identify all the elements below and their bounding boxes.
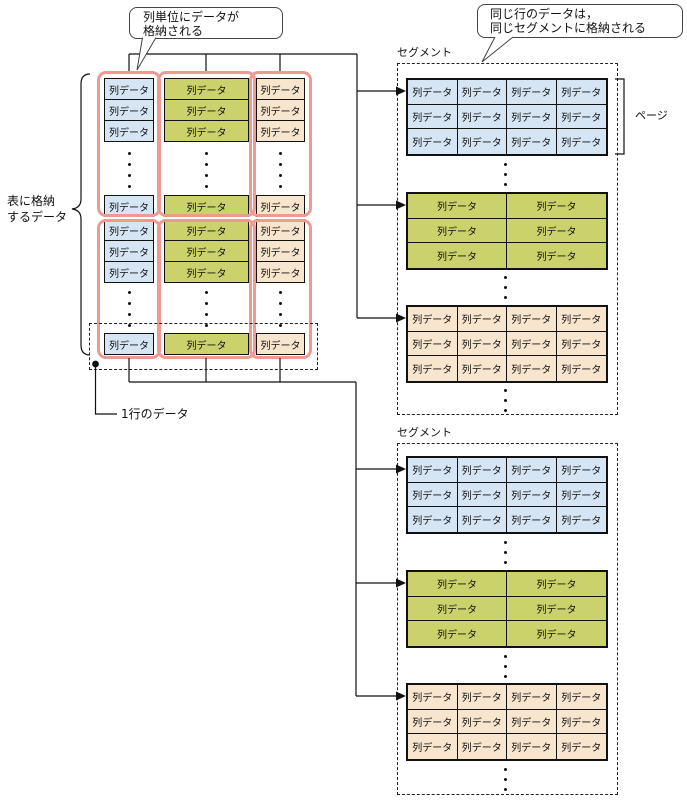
column-data-cell: 列データ bbox=[458, 356, 508, 381]
column-data-cell: 列データ bbox=[507, 129, 557, 154]
callout-segment-storage-line2: 同じセグメントに格納される bbox=[490, 21, 677, 35]
ellipsis-dot bbox=[504, 409, 507, 412]
ellipsis-dot bbox=[504, 399, 507, 402]
column-data-cell: 列データ bbox=[557, 734, 607, 759]
column-data-cell: 列データ bbox=[408, 734, 458, 759]
column-data-cell: 列データ bbox=[408, 129, 458, 154]
segment-label: セグメント bbox=[397, 424, 452, 440]
column-data-cell: 列データ bbox=[458, 734, 508, 759]
column-data-cell: 列データ bbox=[507, 194, 606, 219]
column-data-cell: 列データ bbox=[507, 332, 557, 357]
column-data-cell: 列データ bbox=[557, 685, 607, 710]
column-data-cell: 列データ bbox=[557, 356, 607, 381]
column-data-cell: 列データ bbox=[557, 507, 607, 532]
column-data-cell: 列データ bbox=[458, 129, 508, 154]
column-data-cell: 列データ bbox=[408, 194, 507, 219]
column-data-cell: 列データ bbox=[557, 710, 607, 735]
table-data-label: 表に格納 するデータ bbox=[7, 194, 67, 225]
row-data-outline bbox=[89, 323, 318, 370]
callout-tail bbox=[482, 37, 513, 62]
column-data-cell: 列データ bbox=[458, 80, 508, 105]
column-data-cell: 列データ bbox=[408, 685, 458, 710]
column-data-cell: 列データ bbox=[408, 597, 507, 622]
column-data-cell: 列データ bbox=[507, 307, 557, 332]
column-data-cell: 列データ bbox=[408, 80, 458, 105]
column-group-outline bbox=[249, 71, 312, 217]
column-data-cell: 列データ bbox=[458, 507, 508, 532]
ellipsis-dot bbox=[504, 389, 507, 392]
column-data-cell: 列データ bbox=[408, 219, 507, 244]
callout-tail bbox=[137, 38, 156, 71]
ellipsis-dot bbox=[504, 163, 507, 166]
column-data-cell: 列データ bbox=[507, 685, 557, 710]
callout-column-storage-line1: 列単位にデータが bbox=[143, 10, 277, 24]
ellipsis-dot bbox=[504, 173, 507, 176]
callout-column-storage: 列単位にデータが 格納される bbox=[129, 7, 283, 39]
column-data-cell: 列データ bbox=[408, 105, 458, 130]
page-block: 列データ列データ列データ列データ列データ列データ列データ列データ列データ列データ… bbox=[406, 456, 608, 534]
ellipsis-dot bbox=[504, 276, 507, 279]
row-label-connector-line bbox=[96, 364, 118, 414]
page-block: 列データ列データ列データ列データ列データ列データ列データ列データ列データ列データ… bbox=[406, 78, 608, 156]
column-data-cell: 列データ bbox=[408, 243, 507, 268]
diagram-canvas: 列単位にデータが 格納される 同じ行のデータは， 同じセグメントに格納される 表… bbox=[0, 0, 687, 800]
ellipsis-dot bbox=[504, 778, 507, 781]
column-data-cell: 列データ bbox=[458, 685, 508, 710]
column-data-cell: 列データ bbox=[458, 332, 508, 357]
ellipsis-dot bbox=[504, 551, 507, 554]
ellipsis-dot bbox=[504, 183, 507, 186]
column-data-cell: 列データ bbox=[507, 597, 606, 622]
column-data-cell: 列データ bbox=[458, 710, 508, 735]
column-data-cell: 列データ bbox=[507, 80, 557, 105]
column-data-cell: 列データ bbox=[557, 105, 607, 130]
column-data-cell: 列データ bbox=[507, 572, 606, 597]
column-data-cell: 列データ bbox=[507, 243, 606, 268]
column-data-cell: 列データ bbox=[408, 332, 458, 357]
column-data-cell: 列データ bbox=[557, 483, 607, 508]
page-block: 列データ列データ列データ列データ列データ列データ列データ列データ列データ列データ… bbox=[406, 305, 608, 383]
column-group-outline bbox=[157, 71, 256, 217]
column-data-cell: 列データ bbox=[408, 507, 458, 532]
ellipsis-dot bbox=[504, 768, 507, 771]
ellipsis-dot bbox=[504, 296, 507, 299]
segment-label: セグメント bbox=[397, 44, 452, 60]
callout-segment-storage: 同じ行のデータは， 同じセグメントに格納される bbox=[477, 4, 683, 38]
column-data-cell: 列データ bbox=[507, 734, 557, 759]
ellipsis-dot bbox=[504, 561, 507, 564]
column-data-cell: 列データ bbox=[507, 356, 557, 381]
column-data-cell: 列データ bbox=[507, 458, 557, 483]
ellipsis-dot bbox=[504, 286, 507, 289]
column-data-cell: 列データ bbox=[557, 332, 607, 357]
column-data-cell: 列データ bbox=[557, 129, 607, 154]
column-group-outline bbox=[97, 71, 161, 217]
column-data-cell: 列データ bbox=[408, 307, 458, 332]
column-data-cell: 列データ bbox=[408, 483, 458, 508]
brace bbox=[72, 74, 90, 355]
callout-column-storage-line2: 格納される bbox=[143, 24, 277, 38]
column-data-cell: 列データ bbox=[408, 621, 507, 646]
column-data-cell: 列データ bbox=[458, 307, 508, 332]
table-data-label-line2: するデータ bbox=[7, 210, 67, 226]
page-block: 列データ列データ列データ列データ列データ列データ列データ列データ列データ列データ… bbox=[406, 683, 608, 761]
page-block: 列データ列データ列データ列データ列データ列データ bbox=[406, 570, 608, 648]
column-data-cell: 列データ bbox=[507, 621, 606, 646]
column-data-cell: 列データ bbox=[507, 507, 557, 532]
column-data-cell: 列データ bbox=[507, 105, 557, 130]
column-data-cell: 列データ bbox=[557, 80, 607, 105]
column-data-cell: 列データ bbox=[408, 710, 458, 735]
column-data-cell: 列データ bbox=[557, 307, 607, 332]
column-data-cell: 列データ bbox=[557, 458, 607, 483]
column-data-cell: 列データ bbox=[408, 356, 458, 381]
column-data-cell: 列データ bbox=[408, 458, 458, 483]
column-data-cell: 列データ bbox=[507, 710, 557, 735]
column-data-cell: 列データ bbox=[507, 219, 606, 244]
column-data-cell: 列データ bbox=[458, 105, 508, 130]
ellipsis-dot bbox=[504, 788, 507, 791]
ellipsis-dot bbox=[504, 665, 507, 668]
table-data-label-line1: 表に格納 bbox=[7, 194, 67, 210]
column-data-cell: 列データ bbox=[458, 458, 508, 483]
callout-segment-storage-line1: 同じ行のデータは， bbox=[490, 7, 677, 21]
page-label: ページ bbox=[635, 107, 668, 123]
page-block: 列データ列データ列データ列データ列データ列データ bbox=[406, 192, 608, 270]
ellipsis-dot bbox=[504, 655, 507, 658]
ellipsis-dot bbox=[504, 541, 507, 544]
column-data-cell: 列データ bbox=[458, 483, 508, 508]
row-data-label: 1行のデータ bbox=[121, 407, 189, 423]
ellipsis-dot bbox=[504, 675, 507, 678]
column-data-cell: 列データ bbox=[408, 572, 507, 597]
column-data-cell: 列データ bbox=[507, 483, 557, 508]
